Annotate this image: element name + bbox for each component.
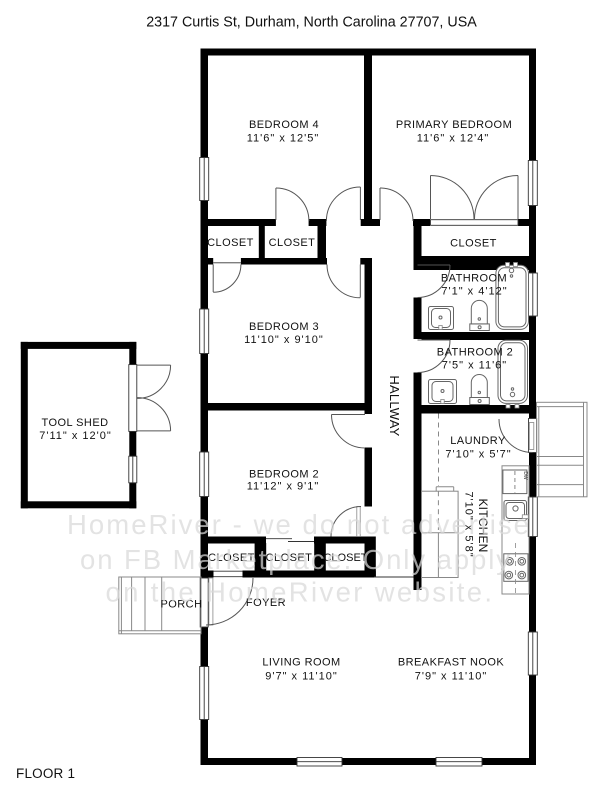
svg-text:HALLWAY: HALLWAY	[387, 375, 402, 436]
svg-text:7'10" x 5'7": 7'10" x 5'7"	[445, 449, 511, 461]
svg-text:BEDROOM 3: BEDROOM 3	[249, 321, 319, 333]
svg-text:TOOL SHED: TOOL SHED	[41, 417, 108, 429]
svg-text:BREAKFAST NOOK: BREAKFAST NOOK	[398, 657, 505, 669]
svg-text:FLOOR 1: FLOOR 1	[16, 766, 75, 781]
svg-text:on the HomeRiver website.: on the HomeRiver website.	[106, 577, 495, 608]
svg-text:11'12" x 9'1": 11'12" x 9'1"	[247, 481, 320, 493]
svg-text:CLOSET: CLOSET	[450, 238, 497, 250]
svg-text:LIVING ROOM: LIVING ROOM	[262, 657, 340, 669]
svg-text:LAUNDRY: LAUNDRY	[450, 435, 506, 447]
svg-text:9'7" x 11'10": 9'7" x 11'10"	[265, 671, 338, 683]
svg-text:BATHROOM 2: BATHROOM 2	[437, 347, 513, 359]
svg-text:2317 Curtis St, Durham, North: 2317 Curtis St, Durham, North Carolina 2…	[146, 15, 477, 31]
svg-text:7'1" x 4'12": 7'1" x 4'12"	[441, 286, 507, 298]
svg-text:BEDROOM 2: BEDROOM 2	[249, 469, 319, 481]
svg-text:7'5" x 11'6": 7'5" x 11'6"	[442, 360, 507, 372]
svg-text:BATHROOM: BATHROOM	[441, 273, 507, 285]
svg-text:on FB Marketplace. Only apply: on FB Marketplace. Only apply	[80, 544, 512, 575]
svg-text:BEDROOM 4: BEDROOM 4	[249, 119, 319, 131]
svg-text:11'6" x 12'5": 11'6" x 12'5"	[247, 133, 320, 145]
svg-text:7'11" x 12'0": 7'11" x 12'0"	[39, 430, 112, 442]
svg-text:CLOSET: CLOSET	[269, 237, 316, 249]
svg-text:CLOSET: CLOSET	[207, 237, 254, 249]
svg-text:DW: DW	[522, 471, 528, 480]
svg-text:HomeRiver - we do not advertis: HomeRiver - we do not advertise	[67, 509, 531, 540]
svg-text:11'10" x 9'10": 11'10" x 9'10"	[244, 334, 324, 346]
svg-text:11'6" x 12'4": 11'6" x 12'4"	[417, 133, 490, 145]
svg-text:7'9" x 11'10": 7'9" x 11'10"	[415, 671, 488, 683]
svg-text:PRIMARY BEDROOM: PRIMARY BEDROOM	[396, 119, 512, 131]
